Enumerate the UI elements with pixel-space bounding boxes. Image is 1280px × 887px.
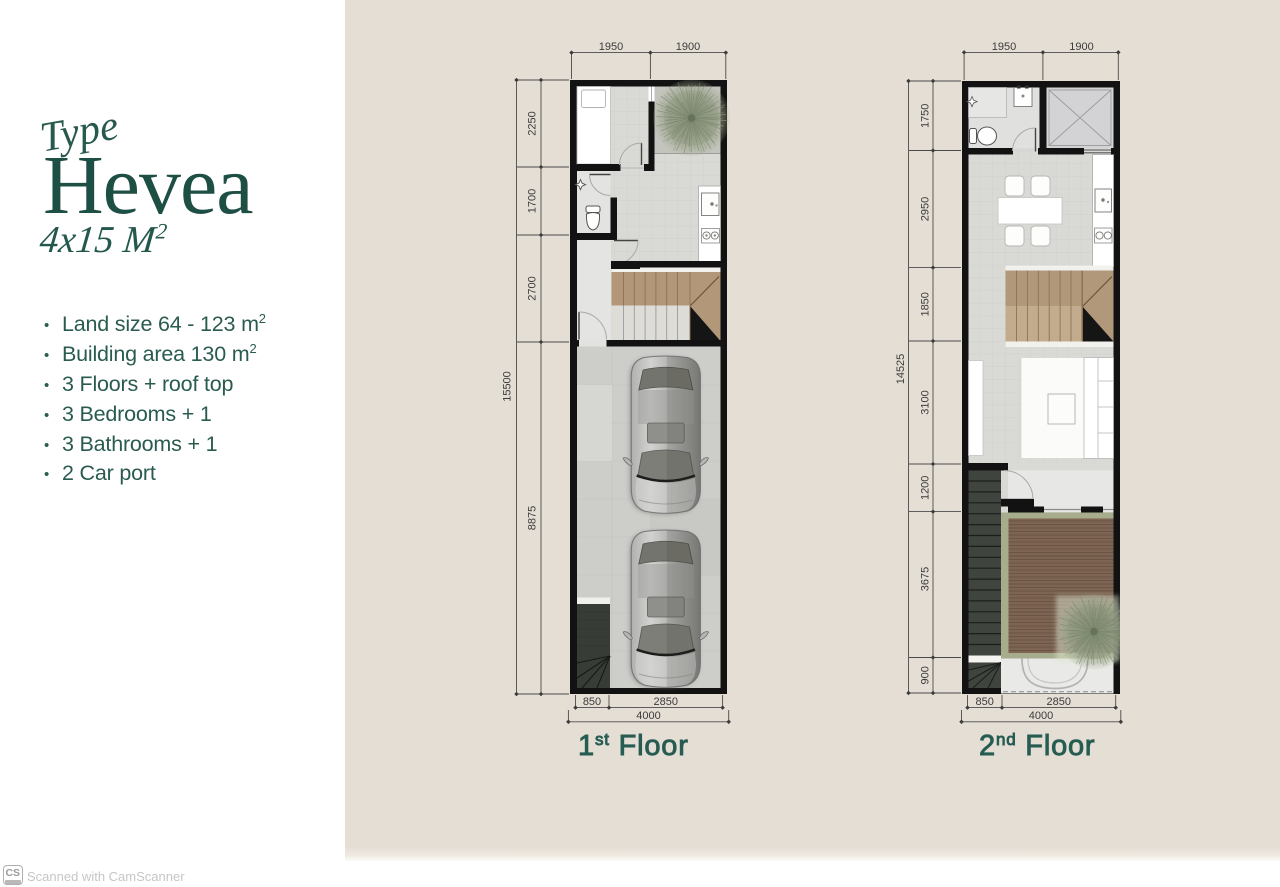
svg-text:1850: 1850 [920,292,932,316]
svg-text:850: 850 [583,696,601,708]
svg-text:14525: 14525 [895,354,907,385]
svg-text:2250: 2250 [527,111,539,135]
svg-text:1200: 1200 [920,476,932,500]
svg-text:2700: 2700 [527,276,539,300]
svg-text:2850: 2850 [1047,696,1071,708]
svg-text:2850: 2850 [654,696,678,708]
svg-text:900: 900 [920,666,932,684]
svg-text:1700: 1700 [527,189,539,213]
svg-text:1900: 1900 [676,41,700,53]
svg-text:850: 850 [976,696,994,708]
svg-text:3100: 3100 [920,390,932,414]
svg-text:4000: 4000 [636,710,660,722]
svg-text:4000: 4000 [1029,710,1053,722]
svg-text:1900: 1900 [1069,41,1093,53]
svg-text:1950: 1950 [599,41,623,53]
svg-text:15500: 15500 [502,371,514,402]
svg-text:2nd Floor: 2nd Floor [979,730,1095,762]
svg-text:2950: 2950 [920,197,932,221]
svg-text:1st Floor: 1st Floor [578,730,689,762]
svg-text:1750: 1750 [920,104,932,128]
svg-text:3675: 3675 [920,567,932,591]
svg-text:8875: 8875 [527,506,539,530]
svg-text:1950: 1950 [992,41,1016,53]
